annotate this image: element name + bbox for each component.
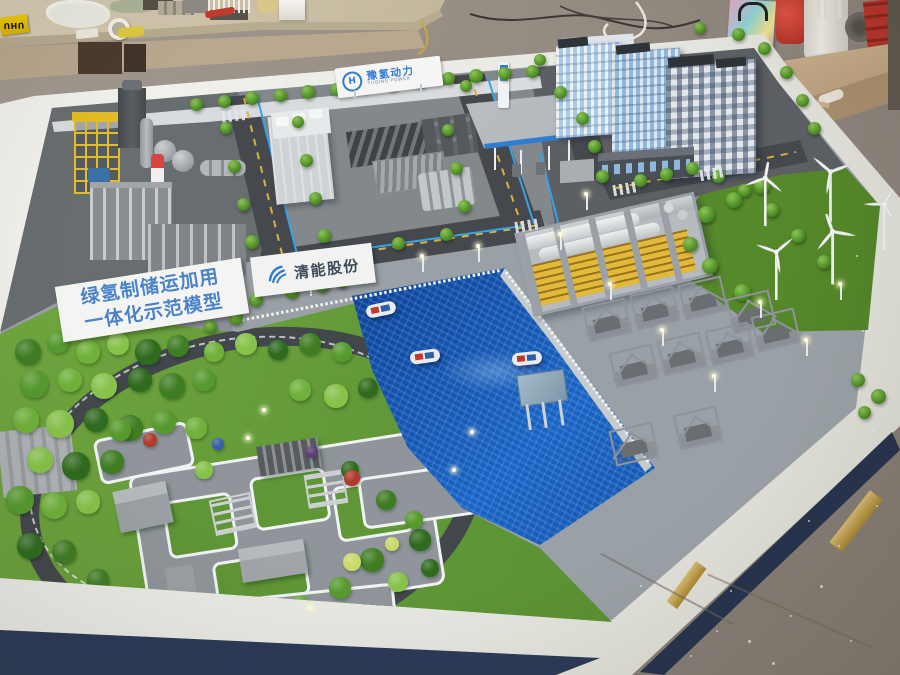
bush-icon [91, 373, 117, 399]
gate-logo-circle: H [341, 70, 363, 92]
streetlight-lamp-icon [608, 282, 612, 286]
bush-icon [329, 577, 351, 599]
streetlight-pole [806, 341, 808, 356]
bush-icon [344, 470, 360, 486]
streetlight-pole [760, 303, 762, 318]
bush-icon [107, 333, 129, 355]
streetlight-lamp-icon [476, 244, 480, 248]
streetlight-pole [610, 285, 612, 300]
bush-icon [100, 450, 124, 474]
gate-sign-post [420, 84, 422, 93]
bush-icon [204, 342, 224, 362]
bush-icon [185, 417, 207, 439]
bush-icon [268, 340, 288, 360]
bush-icon [358, 378, 378, 398]
garden-lamp-icon [470, 430, 474, 434]
streetlight-lamp-icon [420, 254, 424, 258]
bush-icon [128, 368, 152, 392]
crosswalk [221, 109, 248, 123]
bush-icon [152, 410, 176, 434]
streetlight-lamp-icon [804, 338, 808, 342]
bush-icon [388, 572, 408, 592]
workshop-photo: UHU [0, 0, 900, 675]
bush-icon [41, 493, 67, 519]
bush-icon [109, 419, 131, 441]
gate-logo-letter: H [348, 76, 357, 87]
garden-lamp-icon [308, 606, 312, 610]
company-logo-icon [265, 262, 290, 287]
bush-icon [58, 368, 82, 392]
bush-icon [46, 410, 74, 438]
bush-icon [360, 548, 384, 572]
bush-icon [52, 540, 76, 564]
company-sign-text: 清能股份 [293, 254, 361, 283]
bush-icon [332, 342, 352, 362]
bush-icon [135, 339, 161, 365]
crosswalk [612, 181, 640, 196]
bush-icon [76, 490, 100, 514]
streetlight-pole [560, 235, 562, 250]
streetlight-pole [422, 257, 424, 272]
streetlight-lamp-icon [558, 232, 562, 236]
bush-icon [84, 408, 108, 432]
bush-icon [289, 379, 311, 401]
bush-icon [76, 340, 100, 364]
streetlight-lamp-icon [838, 282, 842, 286]
bush-icon [343, 553, 361, 571]
bush-icon [17, 533, 43, 559]
bush-icon [62, 452, 90, 480]
streetlight-pole [586, 195, 588, 210]
gate-sign-post [354, 90, 356, 99]
bush-icon [299, 333, 321, 355]
streetlight-pole [840, 285, 842, 300]
bush-icon [15, 339, 41, 365]
streetlight-lamp-icon [660, 328, 664, 332]
bush-icon [20, 370, 48, 398]
bush-icon [324, 384, 348, 408]
bush-icon [159, 373, 185, 399]
streetlight-pole [662, 331, 664, 346]
gate-sign-text: 豫氢动力 YUQING POWER [366, 66, 416, 88]
bush-icon [212, 438, 224, 450]
bush-icon [376, 490, 396, 510]
streetlight-lamp-icon [712, 374, 716, 378]
streetlight-pole [714, 377, 716, 392]
bush-icon [409, 529, 431, 551]
bush-icon [195, 461, 213, 479]
bush-icon [143, 433, 157, 447]
bush-icon [167, 335, 189, 357]
streetlight-pole [478, 247, 480, 262]
bush-icon [306, 446, 318, 458]
crosswalk [699, 166, 727, 181]
bush-icon [405, 511, 423, 529]
bush-icon [193, 369, 215, 391]
bush-icon [235, 333, 257, 355]
bush-icon [385, 537, 399, 551]
garden-lamp-icon [452, 468, 456, 472]
streetlight-lamp-icon [584, 192, 588, 196]
streetlight-lamp-icon [758, 300, 762, 304]
bush-icon [27, 447, 53, 473]
bush-icon [6, 486, 34, 514]
bush-icon [421, 559, 439, 577]
bush-icon [13, 407, 39, 433]
crosswalk [514, 218, 541, 233]
